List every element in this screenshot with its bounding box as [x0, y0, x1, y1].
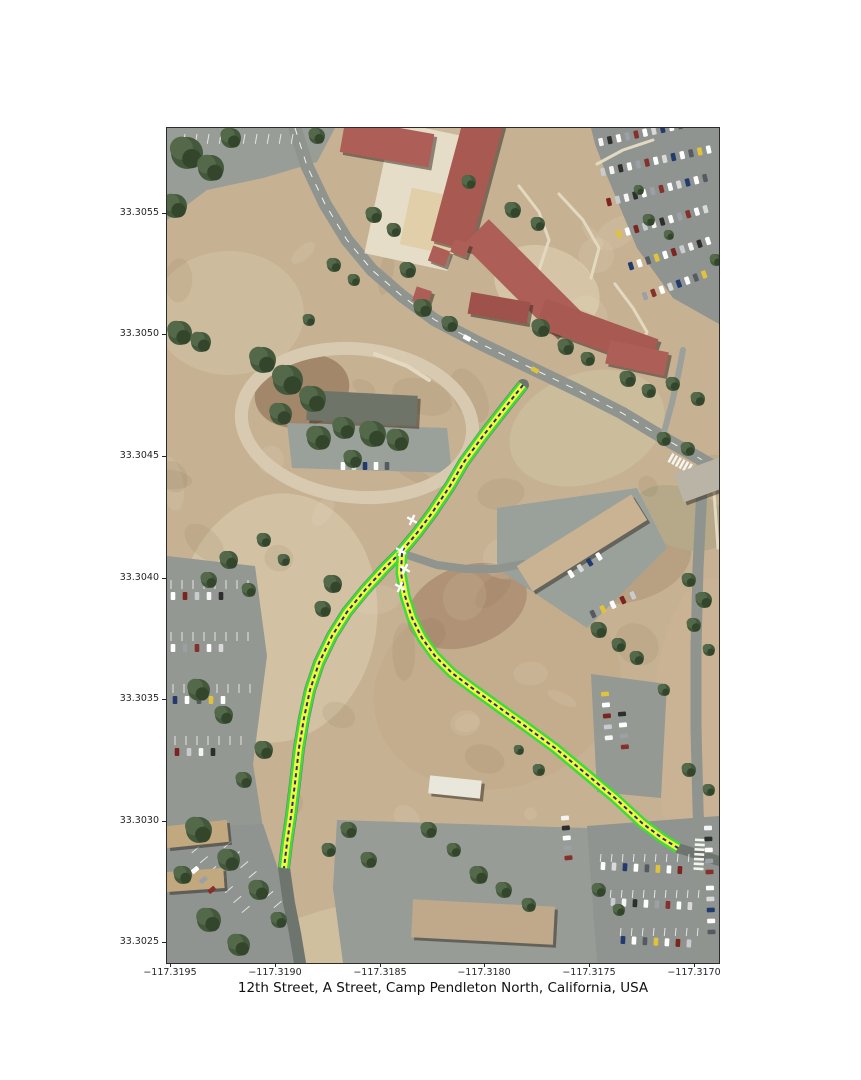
car	[374, 462, 379, 470]
car	[183, 644, 188, 652]
satellite-map	[167, 128, 719, 963]
figure-title: 12th Street, A Street, Camp Pendleton No…	[167, 980, 719, 997]
y-tick-mark	[162, 821, 166, 822]
car	[706, 897, 714, 902]
car	[619, 722, 627, 727]
car	[363, 462, 368, 470]
car	[563, 845, 571, 850]
car	[171, 592, 176, 600]
y-tick-label: 33.3045	[89, 450, 159, 462]
car	[600, 862, 605, 870]
car	[385, 462, 390, 470]
car	[622, 863, 627, 871]
y-tick-label: 33.3025	[89, 936, 159, 948]
car	[643, 900, 648, 908]
x-tick-label: −117.3170	[654, 967, 734, 979]
car	[171, 644, 176, 652]
y-tick-label: 33.3040	[89, 572, 159, 584]
car	[620, 936, 625, 944]
map-plot-area	[166, 127, 720, 964]
car	[618, 711, 626, 716]
car	[655, 865, 660, 873]
figure-canvas: 33.305533.305033.304533.304033.303533.30…	[0, 0, 861, 1080]
car	[611, 862, 616, 870]
y-tick-mark	[162, 578, 166, 579]
car	[219, 592, 224, 600]
car	[207, 644, 212, 652]
x-tick-mark	[275, 963, 276, 967]
car	[704, 837, 712, 842]
car	[621, 744, 629, 749]
car	[187, 748, 192, 756]
car	[207, 592, 212, 600]
car	[199, 748, 204, 756]
car	[185, 696, 190, 704]
car	[687, 902, 692, 910]
car	[642, 937, 647, 945]
car	[173, 696, 178, 704]
y-tick-label: 33.3030	[89, 815, 159, 827]
car	[665, 901, 670, 909]
car	[644, 864, 649, 872]
car	[219, 644, 224, 652]
car	[601, 691, 609, 696]
x-tick-mark	[589, 963, 590, 967]
car	[620, 733, 628, 738]
x-tick-label: −117.3185	[340, 967, 420, 979]
car	[676, 901, 681, 909]
car	[633, 864, 638, 872]
car	[195, 644, 200, 652]
x-tick-label: −117.3190	[235, 967, 315, 979]
y-tick-mark	[162, 942, 166, 943]
x-tick-label: −117.3195	[130, 967, 210, 979]
x-tick-mark	[380, 963, 381, 967]
car	[195, 592, 200, 600]
car	[602, 702, 610, 707]
car	[561, 815, 569, 820]
car	[564, 855, 572, 860]
x-tick-mark	[484, 963, 485, 967]
car	[183, 592, 188, 600]
car	[707, 908, 715, 913]
car	[631, 936, 636, 944]
car	[686, 939, 691, 947]
y-tick-mark	[162, 334, 166, 335]
car	[654, 900, 659, 908]
car	[706, 886, 714, 891]
car	[705, 848, 713, 853]
y-tick-label: 33.3035	[89, 693, 159, 705]
car	[221, 696, 226, 704]
car	[705, 859, 713, 864]
car	[705, 870, 713, 875]
car	[175, 748, 180, 756]
x-tick-mark	[170, 963, 171, 967]
y-tick-label: 33.3055	[89, 207, 159, 219]
x-tick-label: −117.3180	[444, 967, 524, 979]
car	[605, 735, 613, 740]
car	[632, 899, 637, 907]
car	[664, 938, 669, 946]
car	[704, 826, 712, 831]
car	[707, 930, 715, 935]
car	[603, 713, 611, 718]
y-tick-mark	[162, 456, 166, 457]
x-tick-label: −117.3175	[549, 967, 629, 979]
car	[604, 724, 612, 729]
y-tick-label: 33.3050	[89, 328, 159, 340]
car	[209, 696, 214, 704]
car	[666, 865, 671, 873]
car	[677, 866, 682, 874]
y-tick-mark	[162, 699, 166, 700]
car	[707, 919, 715, 924]
car	[211, 748, 216, 756]
car	[653, 938, 658, 946]
y-tick-mark	[162, 213, 166, 214]
car	[675, 939, 680, 947]
car	[563, 835, 571, 840]
x-tick-mark	[694, 963, 695, 967]
car	[341, 462, 346, 470]
car	[562, 825, 570, 830]
